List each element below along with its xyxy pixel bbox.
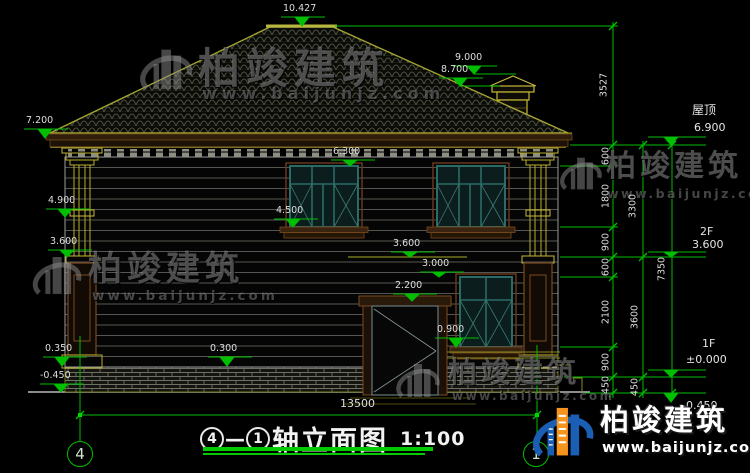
dim-window-head-1f-level: 3.000 [422,259,449,269]
dim-window-head-2f-level: 6.300 [333,147,360,157]
entry-door [359,296,451,395]
chain-450-b: 450 [630,378,640,396]
dim-plinth-mid-level: 0.300 [210,344,237,354]
chain-2100: 2100 [601,300,611,324]
label-2f: 2F [700,226,713,237]
chain-600-a: 600 [601,147,611,165]
window-1f [450,274,522,359]
chain-900-a: 900 [601,233,611,251]
chain-3527: 3527 [599,73,609,97]
title-underline-thin [203,453,425,455]
dim-window-sill-1f-level: 0.900 [437,325,464,335]
dim-window-sill-2f-level: 4.500 [276,206,303,216]
label-1f-level: ±0.000 [686,354,727,365]
eave-fascia [46,133,572,157]
grid-bubble-4: 4 [67,441,93,467]
chain-900-b: 900 [601,353,611,371]
chain-3300: 3300 [628,194,638,218]
label-2f-level: 3.600 [692,239,724,250]
dim-belt-left-level: 3.600 [50,237,77,247]
baijun-color-logo-icon [528,400,596,466]
dim-total-width: 13500 [340,398,375,409]
chain-3600: 3600 [630,305,640,329]
logo-url-text: www.baijunjz.com [602,441,750,456]
dim-chimney-top-level: 9.000 [455,53,482,63]
chain-600-b: 600 [601,258,611,276]
chain-1800: 1800 [601,184,611,208]
logo-cn-text: 柏竣建筑 [600,406,728,435]
dim-chimney-cap-level: 8.700 [441,65,468,75]
chain-7350: 7350 [657,257,667,281]
window-2f-right [427,163,515,238]
baijun-color-logo: 柏竣建筑 www.baijunjz.com [528,400,750,468]
dim-ridge-level: 10.427 [283,4,316,14]
label-roof-level: 6.900 [694,122,726,133]
dim-ground-left-level: -0.450 [40,371,71,381]
dim-belt-mid-level: 3.600 [393,239,420,249]
title-underline-thick [203,447,433,451]
dim-eave-left-level: 7.200 [26,116,53,126]
chain-450-a: 450 [601,376,611,394]
plinth-brick-base [65,367,558,392]
dim-plinth-left-level: 0.350 [45,344,72,354]
dim-column-cap-level: 4.900 [48,196,75,206]
dim-door-head-level: 2.200 [395,281,422,291]
label-1f: 1F [702,338,715,349]
hip-roof [50,26,568,133]
cad-elevation-drawing: 柏竣建筑 www.baijunjz.com 柏竣建筑 www.baijunjz.… [0,0,750,473]
label-roof: 屋顶 [692,104,716,116]
